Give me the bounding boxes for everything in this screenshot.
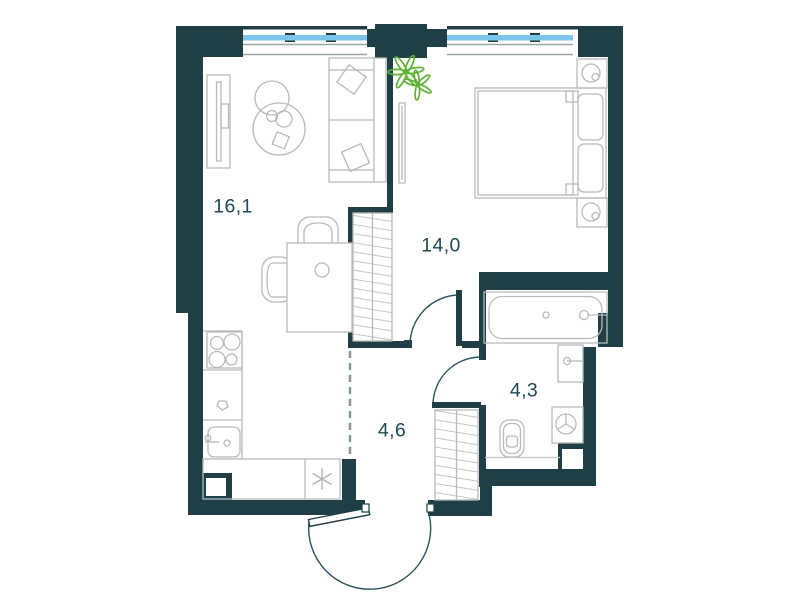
- mirror: [399, 103, 405, 183]
- throw-pillow: [337, 65, 366, 94]
- lounge-set: [253, 81, 305, 155]
- wall-segment: [428, 500, 492, 516]
- wall-segment: [583, 347, 596, 486]
- floor-plan-drawing: [0, 0, 800, 600]
- wall-segment: [479, 272, 608, 290]
- dining-table: [287, 243, 352, 332]
- pillow: [578, 94, 603, 140]
- entry-door-swing: [309, 514, 431, 589]
- wall-segment: [558, 443, 583, 449]
- throw-pillow: [342, 144, 370, 172]
- wall-segment: [387, 56, 393, 213]
- bathtub: [484, 292, 607, 343]
- blanket: [478, 91, 573, 195]
- bed: [475, 88, 606, 198]
- wall-segment: [348, 207, 393, 213]
- wall-segment: [342, 459, 356, 500]
- wall-segment: [243, 26, 367, 30]
- nightstand: [577, 59, 607, 88]
- bathroom-door-swing: [433, 357, 481, 405]
- wall-segment: [375, 24, 427, 58]
- wardrobe: [353, 213, 392, 341]
- duct-niche: [562, 449, 583, 469]
- wall-segment: [176, 26, 243, 57]
- toilet-icon: [500, 420, 524, 457]
- appliance-asterisk-icon: [313, 468, 332, 490]
- kitchen-sink: [205, 427, 240, 457]
- bathroom-door-leaf: [432, 402, 481, 408]
- room-area-label-hallway: 4,6: [378, 420, 406, 443]
- room-area-label-bedroom: 14,0: [421, 235, 461, 258]
- wall-segment: [176, 26, 203, 313]
- bedroom-door-leaf: [456, 290, 462, 346]
- tv-icon: [217, 82, 222, 161]
- wall-segment: [480, 486, 492, 500]
- wall-segment: [188, 500, 365, 515]
- wall-segment: [447, 26, 578, 30]
- window-glass: [447, 35, 573, 41]
- wall-segment: [348, 341, 408, 348]
- washing-machine: [552, 407, 583, 443]
- kitchen-item: [217, 401, 228, 410]
- floor-plan: 16,1 14,0 4,3 4,6: [0, 0, 800, 600]
- dining-set: [262, 217, 352, 332]
- washbasin: [558, 345, 583, 382]
- door-jamb: [427, 504, 434, 512]
- tv-console: [207, 75, 230, 168]
- duct-niche: [206, 478, 226, 496]
- hall-closet: [435, 410, 478, 500]
- wall-segment: [479, 469, 593, 486]
- door-jamb: [362, 504, 369, 512]
- wall-segment: [608, 26, 623, 313]
- tub-faucet-icon: [580, 311, 589, 320]
- pillow: [578, 144, 603, 192]
- plant-icon: [388, 55, 432, 101]
- bedroom-door-swing: [410, 295, 458, 345]
- stove: [207, 332, 242, 368]
- nightstand: [577, 198, 607, 227]
- wall-segment: [558, 449, 562, 469]
- window-glass: [243, 35, 367, 41]
- room-area-label-living: 16,1: [213, 196, 253, 219]
- wall-segment: [188, 313, 203, 515]
- wall-segment: [479, 288, 486, 357]
- sofa: [329, 58, 386, 182]
- room-area-label-bathroom: 4,3: [510, 380, 538, 403]
